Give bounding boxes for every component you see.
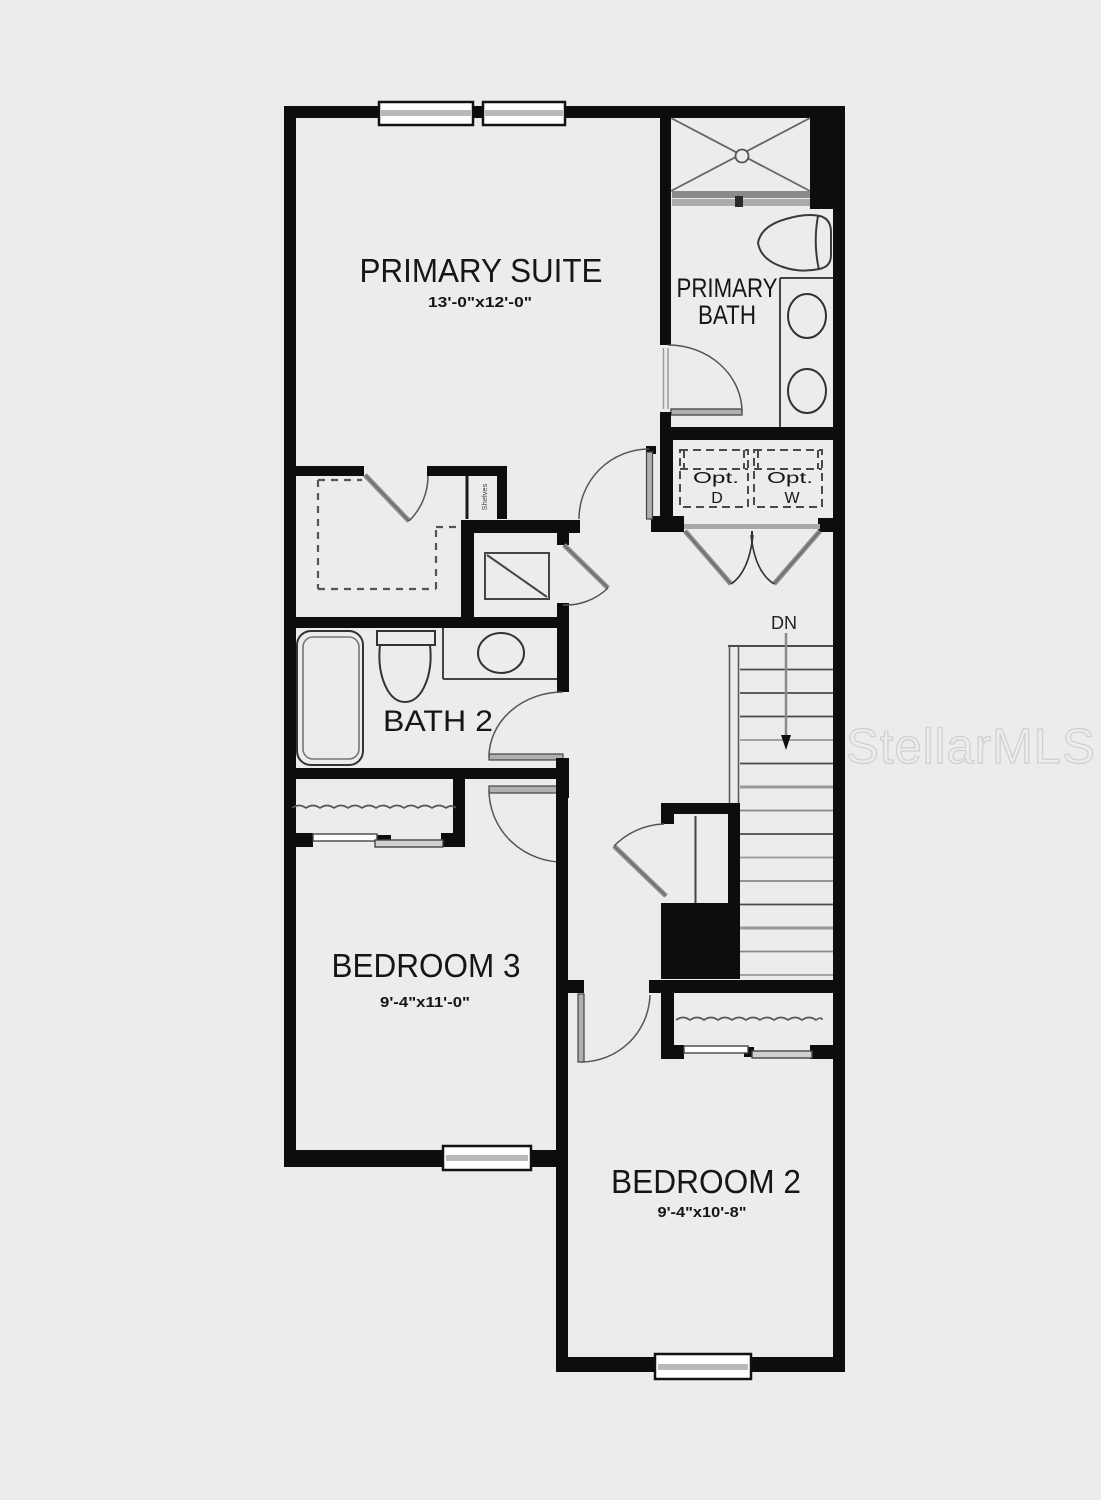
svg-text:D: D xyxy=(711,490,723,507)
svg-text:PRIMARY SUITE: PRIMARY SUITE xyxy=(360,252,603,289)
svg-text:PRIMARY: PRIMARY xyxy=(677,273,778,303)
svg-text:Opt.: Opt. xyxy=(693,470,739,487)
svg-text:DN: DN xyxy=(771,613,797,633)
svg-text:StellarMLS: StellarMLS xyxy=(846,720,1096,774)
svg-text:BEDROOM 3: BEDROOM 3 xyxy=(332,947,521,984)
svg-text:BEDROOM 2: BEDROOM 2 xyxy=(611,1163,801,1200)
svg-text:Shelves: Shelves xyxy=(480,483,489,510)
svg-text:BATH: BATH xyxy=(698,300,756,330)
svg-text:BATH 2: BATH 2 xyxy=(383,705,493,738)
svg-text:9'-4"x11'-0": 9'-4"x11'-0" xyxy=(380,994,470,1011)
svg-text:13'-0"x12'-0": 13'-0"x12'-0" xyxy=(428,294,532,311)
svg-text:9'-4"x10'-8": 9'-4"x10'-8" xyxy=(658,1204,747,1221)
svg-text:Opt.: Opt. xyxy=(767,470,813,487)
svg-text:W: W xyxy=(784,490,800,507)
